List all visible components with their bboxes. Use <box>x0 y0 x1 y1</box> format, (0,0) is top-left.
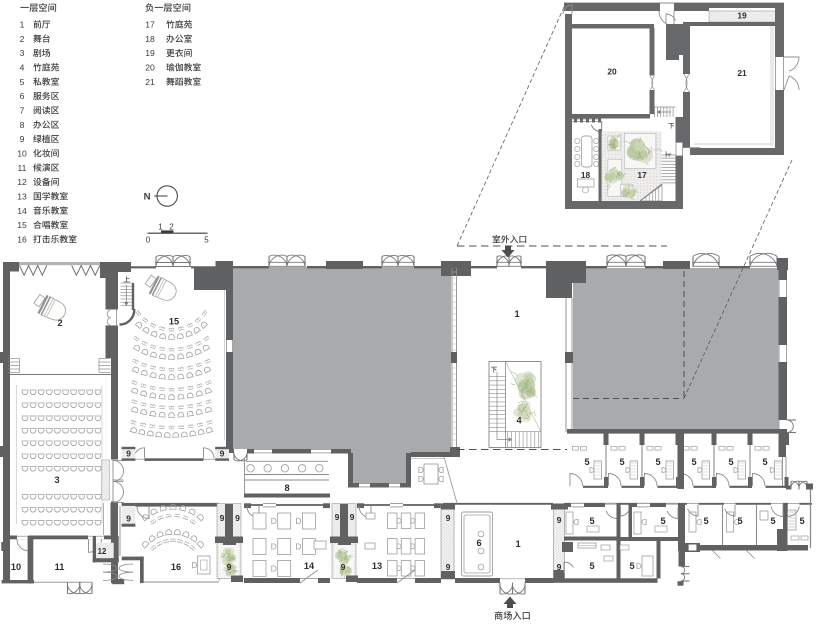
svg-text:1: 1 <box>514 309 519 319</box>
svg-text:9: 9 <box>446 513 451 523</box>
svg-text:1: 1 <box>20 20 25 30</box>
svg-text:9: 9 <box>335 512 340 522</box>
svg-text:5: 5 <box>20 77 25 87</box>
svg-text:21: 21 <box>737 68 747 78</box>
svg-text:9: 9 <box>126 514 131 524</box>
svg-text:10: 10 <box>11 562 21 572</box>
svg-text:17: 17 <box>145 20 155 30</box>
svg-text:15: 15 <box>17 220 27 230</box>
svg-text:9: 9 <box>557 562 562 572</box>
svg-text:5: 5 <box>619 457 624 467</box>
svg-text:5: 5 <box>660 516 665 526</box>
svg-text:N: N <box>144 192 151 203</box>
svg-text:5: 5 <box>584 457 589 467</box>
svg-text:9: 9 <box>220 449 225 459</box>
svg-text:16: 16 <box>17 234 27 244</box>
svg-text:18: 18 <box>145 34 155 44</box>
svg-text:6: 6 <box>476 538 481 548</box>
svg-text:6: 6 <box>20 91 25 101</box>
svg-text:18: 18 <box>581 170 591 180</box>
svg-text:5: 5 <box>728 457 733 467</box>
svg-text:4: 4 <box>516 416 522 426</box>
svg-text:1: 1 <box>515 539 520 549</box>
svg-text:0: 0 <box>146 236 151 245</box>
svg-text:9: 9 <box>20 134 25 144</box>
svg-text:12: 12 <box>98 547 107 556</box>
svg-text:9: 9 <box>341 562 346 572</box>
svg-text:11: 11 <box>55 562 65 572</box>
svg-text:21: 21 <box>145 77 155 87</box>
svg-text:5: 5 <box>762 457 767 467</box>
svg-text:14: 14 <box>17 206 27 216</box>
svg-text:5: 5 <box>629 561 634 571</box>
svg-text:5: 5 <box>799 516 804 526</box>
svg-text:2: 2 <box>169 223 174 232</box>
svg-text:1: 1 <box>158 223 163 232</box>
svg-text:8: 8 <box>284 483 289 493</box>
svg-text:17: 17 <box>637 170 647 180</box>
svg-text:5: 5 <box>770 516 775 526</box>
svg-text:9: 9 <box>220 513 225 523</box>
svg-text:19: 19 <box>737 11 747 21</box>
svg-text:8: 8 <box>20 120 25 130</box>
svg-text:5: 5 <box>655 457 660 467</box>
svg-text:9: 9 <box>227 562 232 572</box>
svg-text:14: 14 <box>304 561 315 571</box>
svg-text:9: 9 <box>235 513 240 523</box>
svg-text:2: 2 <box>20 34 25 44</box>
svg-text:5: 5 <box>589 561 594 571</box>
svg-text:16: 16 <box>171 562 181 572</box>
svg-text:12: 12 <box>17 177 27 187</box>
svg-text:4: 4 <box>20 63 25 73</box>
svg-text:13: 13 <box>17 191 27 201</box>
svg-text:19: 19 <box>145 48 155 58</box>
svg-text:9: 9 <box>557 515 562 525</box>
svg-text:5: 5 <box>589 516 594 526</box>
svg-text:9: 9 <box>446 562 451 572</box>
svg-text:5: 5 <box>204 236 209 245</box>
svg-text:3: 3 <box>20 48 25 58</box>
svg-text:7: 7 <box>20 106 25 116</box>
svg-text:9: 9 <box>350 512 355 522</box>
svg-text:15: 15 <box>169 317 179 327</box>
svg-text:11: 11 <box>18 163 27 173</box>
svg-text:5: 5 <box>737 516 742 526</box>
svg-text:3: 3 <box>54 475 59 485</box>
svg-text:10: 10 <box>17 149 27 159</box>
svg-text:9: 9 <box>126 449 131 459</box>
svg-text:13: 13 <box>372 561 382 571</box>
svg-text:5: 5 <box>691 457 696 467</box>
svg-text:5: 5 <box>703 516 708 526</box>
svg-text:20: 20 <box>145 63 155 73</box>
svg-text:20: 20 <box>607 67 617 77</box>
